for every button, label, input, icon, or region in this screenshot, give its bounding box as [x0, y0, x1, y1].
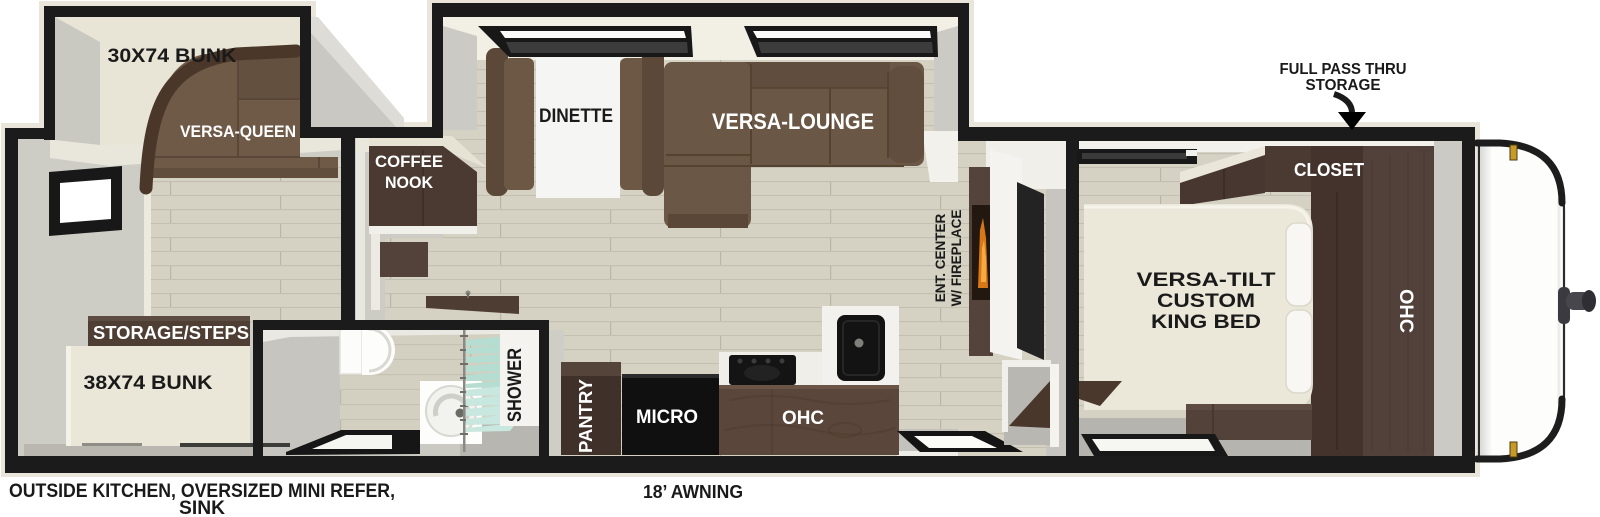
svg-text:OHC: OHC [782, 408, 824, 429]
svg-text:OHC: OHC [1395, 289, 1416, 333]
svg-text:KING BED: KING BED [1151, 312, 1261, 333]
svg-text:SHOWER: SHOWER [505, 348, 526, 422]
svg-text:COFFEE: COFFEE [375, 153, 443, 171]
svg-text:38X74 BUNK: 38X74 BUNK [84, 372, 213, 394]
svg-text:30X74 BUNK: 30X74 BUNK [108, 45, 237, 67]
svg-text:W/ FIREPLACE: W/ FIREPLACE [949, 210, 964, 307]
svg-text:CUSTOM: CUSTOM [1157, 291, 1255, 312]
svg-text:CLOSET: CLOSET [1294, 159, 1365, 180]
svg-text:DINETTE: DINETTE [539, 106, 613, 127]
svg-text:FULL PASS THRU: FULL PASS THRU [1280, 61, 1407, 78]
svg-text:PANTRY: PANTRY [576, 379, 596, 453]
svg-text:STORAGE: STORAGE [1306, 77, 1381, 94]
svg-text:VERSA-TILT: VERSA-TILT [1137, 270, 1276, 291]
svg-text:NOOK: NOOK [385, 174, 433, 192]
svg-text:SINK: SINK [179, 497, 225, 517]
svg-text:STORAGE/STEPS: STORAGE/STEPS [93, 323, 249, 343]
svg-text:VERSA-QUEEN: VERSA-QUEEN [180, 122, 296, 141]
svg-text:ENT. CENTER: ENT. CENTER [933, 213, 948, 302]
svg-text:MICRO: MICRO [636, 407, 698, 428]
svg-text:VERSA-LOUNGE: VERSA-LOUNGE [712, 109, 874, 134]
svg-text:18’ AWNING: 18’ AWNING [643, 482, 743, 502]
